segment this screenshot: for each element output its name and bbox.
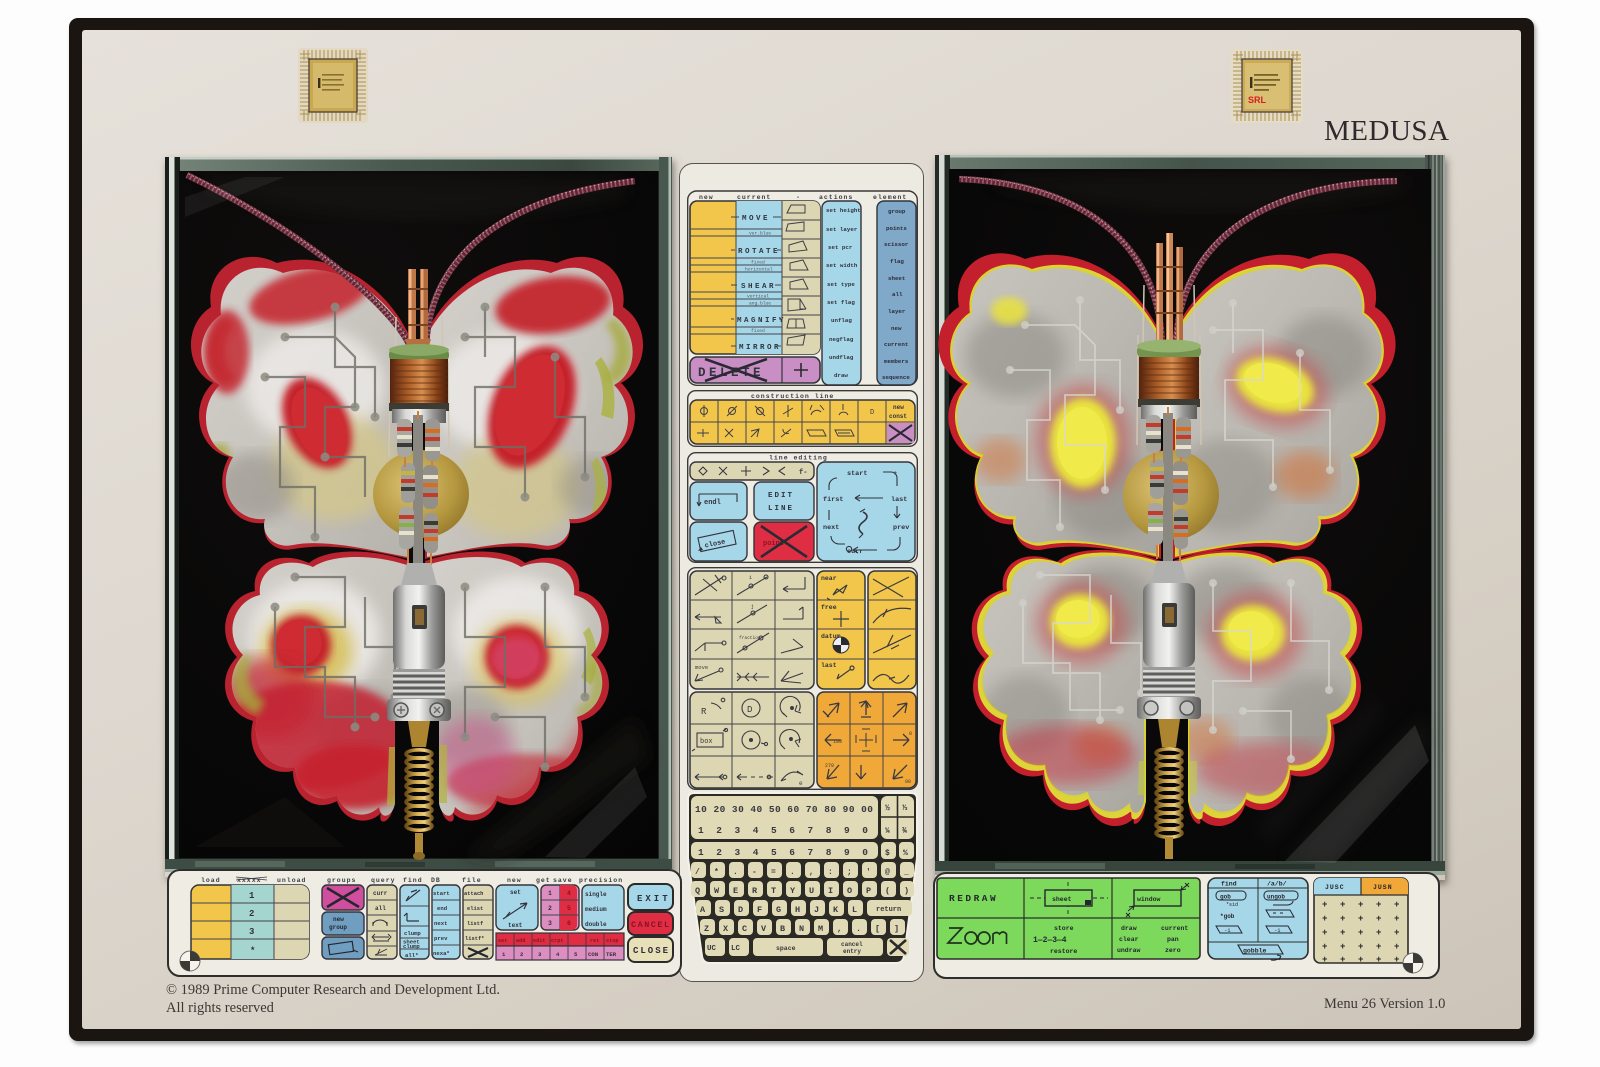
svg-text:+: + — [1340, 900, 1345, 910]
svg-text:CLOSE: CLOSE — [633, 946, 670, 956]
svg-text:listf: listf — [467, 921, 483, 927]
svg-text:clump: clump — [403, 943, 420, 950]
svg-text:unflag: unflag — [831, 317, 852, 324]
svg-text:line editing: line editing — [769, 455, 828, 462]
svg-text:ret: ret — [590, 938, 599, 944]
svg-text:+: + — [1394, 942, 1399, 952]
svg-text:const: const — [889, 413, 907, 420]
svg-text:L: L — [852, 905, 857, 915]
svg-text:elist: elist — [467, 906, 483, 912]
svg-text:6: 6 — [567, 920, 571, 927]
svg-text:zero: zero — [1165, 947, 1181, 954]
svg-text:SRL: SRL — [1248, 95, 1267, 105]
svg-text:clear: clear — [1119, 936, 1139, 943]
svg-text:save: save — [553, 877, 573, 884]
svg-text:REDRAW: REDRAW — [949, 893, 998, 904]
svg-text:space: space — [776, 945, 796, 952]
svg-text:5: 5 — [567, 905, 571, 912]
svg-text:V: V — [761, 924, 767, 934]
svg-text:new: new — [333, 916, 344, 923]
svg-text:listf*: listf* — [465, 936, 484, 942]
svg-text:1—2—3—4: 1—2—3—4 — [1033, 936, 1067, 945]
svg-text:scissor: scissor — [884, 241, 909, 248]
svg-text:½: ½ — [885, 804, 890, 813]
svg-text:move: move — [695, 664, 708, 671]
svg-text:-: - — [796, 194, 801, 201]
svg-text:I: I — [828, 886, 833, 896]
svg-text:¾: ¾ — [902, 827, 907, 836]
svg-text:+: + — [1322, 955, 1327, 965]
svg-text:crpt: crpt — [551, 938, 563, 944]
svg-text:LC: LC — [731, 945, 741, 953]
svg-text:undraw: undraw — [1117, 947, 1141, 954]
svg-text:set width: set width — [826, 262, 858, 269]
svg-text:]: ] — [894, 924, 899, 934]
svg-text:+: + — [1376, 914, 1381, 924]
svg-text:ver.blue: ver.blue — [749, 231, 771, 237]
svg-text:E: E — [733, 886, 738, 896]
svg-text:ROTATE: ROTATE — [738, 248, 780, 256]
svg-text:query: query — [371, 877, 396, 884]
svg-text:all*: all* — [405, 952, 418, 959]
svg-text::: : — [828, 868, 833, 877]
svg-text:return: return — [876, 906, 901, 914]
svg-text:current: current — [737, 194, 771, 201]
svg-text:N: N — [799, 924, 804, 934]
svg-text:/a/b/: /a/b/ — [1267, 881, 1287, 888]
svg-text:H: H — [795, 905, 800, 915]
svg-text:+: + — [1358, 955, 1363, 965]
svg-text:i: i — [749, 575, 752, 581]
svg-text:+: + — [1322, 942, 1327, 952]
svg-text:10 20 30 40 50 60 70 80 90 00: 10 20 30 40 50 60 70 80 90 00 — [695, 804, 873, 815]
svg-text:e: e — [799, 780, 803, 787]
svg-text:new: new — [893, 404, 904, 411]
svg-text:DB: DB — [431, 877, 441, 884]
svg-text:draw: draw — [1121, 925, 1137, 932]
svg-text:+: + — [1340, 914, 1345, 924]
svg-text:set type: set type — [827, 281, 855, 288]
svg-text:¼: ¼ — [885, 827, 890, 836]
svg-text:groups: groups — [327, 877, 356, 884]
svg-text:precision: precision — [579, 877, 623, 884]
svg-text:single: single — [585, 891, 607, 898]
svg-text:medium: medium — [585, 906, 607, 913]
svg-text:get: get — [536, 877, 551, 884]
svg-text:sheet: sheet — [888, 275, 905, 282]
svg-text:+: + — [1394, 955, 1399, 965]
svg-text:store: store — [1054, 925, 1074, 932]
svg-text:cancel: cancel — [841, 941, 863, 948]
svg-text:nexa*: nexa* — [433, 950, 450, 957]
svg-text:4: 4 — [567, 890, 571, 897]
svg-text:end: end — [437, 905, 447, 912]
svg-text:EDIT: EDIT — [768, 492, 794, 500]
svg-text:+: + — [1340, 942, 1345, 952]
svg-text:add: add — [516, 938, 525, 944]
svg-text:undflag: undflag — [829, 354, 854, 361]
svg-text:3: 3 — [548, 920, 552, 927]
svg-text:A: A — [700, 905, 706, 915]
svg-text:*: * — [250, 946, 255, 956]
svg-text:flag: flag — [890, 258, 904, 265]
svg-text:Y: Y — [790, 886, 796, 896]
svg-text:O: O — [847, 886, 852, 896]
svg-text:W: W — [714, 886, 720, 896]
svg-text:%: % — [903, 849, 908, 858]
svg-text:270: 270 — [825, 763, 834, 769]
svg-text:first: first — [823, 496, 843, 504]
svg-text:MAGNIFY: MAGNIFY — [737, 317, 786, 325]
svg-text:+: + — [1340, 928, 1345, 938]
svg-text:+: + — [1376, 942, 1381, 952]
svg-text:window: window — [1137, 896, 1161, 903]
svg-text:0: 0 — [909, 731, 912, 737]
svg-text:/: / — [695, 868, 700, 877]
svg-text:file: file — [462, 877, 482, 884]
svg-text:members: members — [884, 358, 909, 365]
svg-text:+: + — [1322, 928, 1327, 938]
svg-text:-1: -1 — [1224, 927, 1231, 934]
svg-text:G: G — [776, 905, 781, 915]
svg-text:edit: edit — [533, 938, 545, 944]
svg-text:start: start — [847, 470, 867, 478]
svg-text:free: free — [821, 604, 837, 611]
svg-text:.: . — [856, 924, 861, 934]
svg-text:TER: TER — [606, 951, 617, 958]
svg-text:pan: pan — [1167, 936, 1179, 943]
svg-text:all: all — [375, 905, 386, 912]
svg-text:+: + — [1322, 900, 1327, 910]
svg-text:+: + — [1376, 900, 1381, 910]
svg-text:J: J — [814, 905, 819, 915]
svg-text:D: D — [870, 409, 874, 417]
svg-text:(: ( — [885, 886, 890, 896]
svg-text:+: + — [1394, 928, 1399, 938]
svg-text:JUSC: JUSC — [1325, 884, 1345, 891]
svg-text:gobble: gobble — [1243, 948, 1267, 955]
svg-text:+: + — [1376, 955, 1381, 965]
svg-text:K: K — [833, 905, 839, 915]
svg-text:R: R — [752, 886, 758, 896]
svg-text:box: box — [700, 738, 713, 746]
svg-text:+: + — [1394, 900, 1399, 910]
svg-text:+: + — [1322, 914, 1327, 924]
svg-text:Z: Z — [704, 924, 709, 934]
svg-text:stop: stop — [606, 938, 618, 944]
svg-text:+: + — [1358, 942, 1363, 952]
svg-text:next: next — [823, 524, 839, 532]
svg-text:Q: Q — [695, 886, 700, 896]
svg-text:set pcr: set pcr — [828, 244, 853, 251]
svg-text:sequence: sequence — [882, 374, 910, 381]
svg-text:construction line: construction line — [751, 393, 834, 400]
svg-text:text: text — [508, 922, 523, 929]
svg-text:near: near — [821, 575, 837, 582]
svg-text:CANCEL: CANCEL — [631, 920, 671, 930]
svg-text:last: last — [891, 496, 907, 504]
svg-text:horizontal: horizontal — [745, 267, 773, 273]
svg-text:new: new — [891, 325, 902, 332]
svg-text:vertical: vertical — [747, 294, 769, 300]
svg-text:group: group — [329, 924, 347, 931]
svg-text:SHEAR: SHEAR — [741, 283, 776, 291]
svg-text:C: C — [742, 924, 747, 934]
svg-text:1: 1 — [548, 890, 552, 897]
svg-text:JUSN: JUSN — [1373, 884, 1393, 891]
svg-text:start: start — [433, 890, 450, 897]
svg-text:points: points — [886, 225, 907, 232]
svg-text:D: D — [738, 905, 743, 915]
svg-text:prev: prev — [893, 524, 909, 532]
svg-text:double: double — [585, 921, 607, 928]
svg-text:_: _ — [903, 868, 909, 877]
svg-text:MIRROR: MIRROR — [739, 344, 781, 352]
svg-text:): ) — [904, 886, 909, 896]
svg-text:ungob: ungob — [1267, 894, 1285, 901]
svg-text:+: + — [1340, 955, 1345, 965]
svg-text:next: next — [434, 920, 447, 927]
svg-text:-1: -1 — [1274, 927, 1281, 934]
svg-text:find: find — [1221, 881, 1237, 888]
svg-text:D: D — [747, 705, 752, 715]
svg-text:+: + — [1358, 928, 1363, 938]
svg-text:prev: prev — [434, 935, 448, 942]
svg-text:M: M — [818, 924, 823, 934]
svg-text:LINE: LINE — [768, 505, 794, 513]
svg-text:clump: clump — [404, 930, 421, 937]
svg-text:.: . — [790, 868, 795, 877]
svg-text:[: [ — [875, 924, 880, 934]
svg-text:attach: attach — [464, 891, 483, 897]
svg-text:set height: set height — [826, 207, 861, 214]
svg-text:1: 1 — [249, 891, 255, 901]
svg-text:all: all — [892, 291, 903, 298]
svg-text:unload: unload — [277, 877, 306, 884]
svg-text:X: X — [723, 924, 729, 934]
svg-text:set: set — [510, 889, 521, 896]
svg-text:B: B — [780, 924, 785, 934]
svg-text:group: group — [888, 208, 906, 215]
svg-text:90: 90 — [905, 779, 911, 785]
svg-text:2: 2 — [548, 905, 552, 912]
svg-text:layer: layer — [888, 308, 906, 315]
svg-text:+: + — [1376, 928, 1381, 938]
svg-text:T: T — [771, 886, 776, 896]
svg-text:curr: curr — [373, 890, 388, 897]
svg-text:CON: CON — [588, 951, 598, 958]
svg-text:endl: endl — [704, 499, 721, 507]
svg-text:+: + — [1358, 914, 1363, 924]
svg-text:entry: entry — [843, 948, 861, 955]
svg-text:set: set — [498, 938, 507, 944]
svg-text:F: F — [757, 905, 762, 915]
svg-text:=: = — [771, 868, 776, 877]
svg-text:load: load — [201, 877, 221, 884]
svg-text:ang.blue: ang.blue — [749, 301, 771, 307]
svg-text:2: 2 — [249, 909, 254, 919]
svg-text:f-: f- — [799, 469, 807, 477]
svg-text:*: * — [714, 868, 719, 877]
svg-text:$: $ — [885, 849, 890, 858]
svg-text:,: , — [837, 924, 842, 934]
svg-text:+: + — [1358, 900, 1363, 910]
svg-text:fixed: fixed — [751, 260, 765, 266]
svg-text:*gob: *gob — [1220, 913, 1235, 920]
svg-text:sheet: sheet — [1052, 896, 1072, 903]
svg-text:find: find — [403, 877, 423, 884]
svg-text:180: 180 — [833, 739, 842, 745]
svg-text:j: j — [751, 604, 754, 610]
svg-text:EXIT: EXIT — [637, 894, 671, 904]
svg-text:new: new — [699, 194, 714, 201]
svg-text:S: S — [719, 905, 724, 915]
svg-text:current: current — [884, 341, 908, 348]
svg-text:;: ; — [847, 868, 852, 877]
svg-text:set flag: set flag — [827, 299, 855, 306]
svg-text:current: current — [1161, 925, 1188, 932]
svg-text:element: element — [873, 194, 907, 201]
svg-text:gob: gob — [1220, 894, 1231, 901]
svg-text:+: + — [1394, 914, 1399, 924]
svg-text:,: , — [809, 868, 814, 877]
svg-text:draw: draw — [834, 372, 848, 379]
svg-text:.: . — [733, 868, 738, 877]
svg-text:new: new — [507, 877, 522, 884]
svg-text:R: R — [701, 707, 707, 717]
svg-text:negflag: negflag — [829, 336, 854, 343]
svg-text:restore: restore — [1050, 948, 1077, 955]
svg-text:last: last — [821, 662, 837, 669]
svg-text:3: 3 — [249, 927, 254, 937]
svg-text:fixed: fixed — [751, 328, 765, 334]
svg-text:@: @ — [885, 868, 890, 877]
svg-text:actions: actions — [819, 194, 853, 201]
svg-text:fraction: fraction — [739, 635, 761, 641]
svg-text:P: P — [866, 886, 871, 896]
svg-text:*sid: *sid — [1226, 902, 1238, 908]
svg-text:MOVE: MOVE — [742, 215, 770, 223]
svg-text:U: U — [809, 886, 814, 896]
svg-text:set layer: set layer — [826, 226, 858, 233]
svg-text:UC: UC — [707, 945, 717, 953]
svg-text:-: - — [752, 868, 757, 877]
svg-text:': ' — [866, 868, 871, 877]
